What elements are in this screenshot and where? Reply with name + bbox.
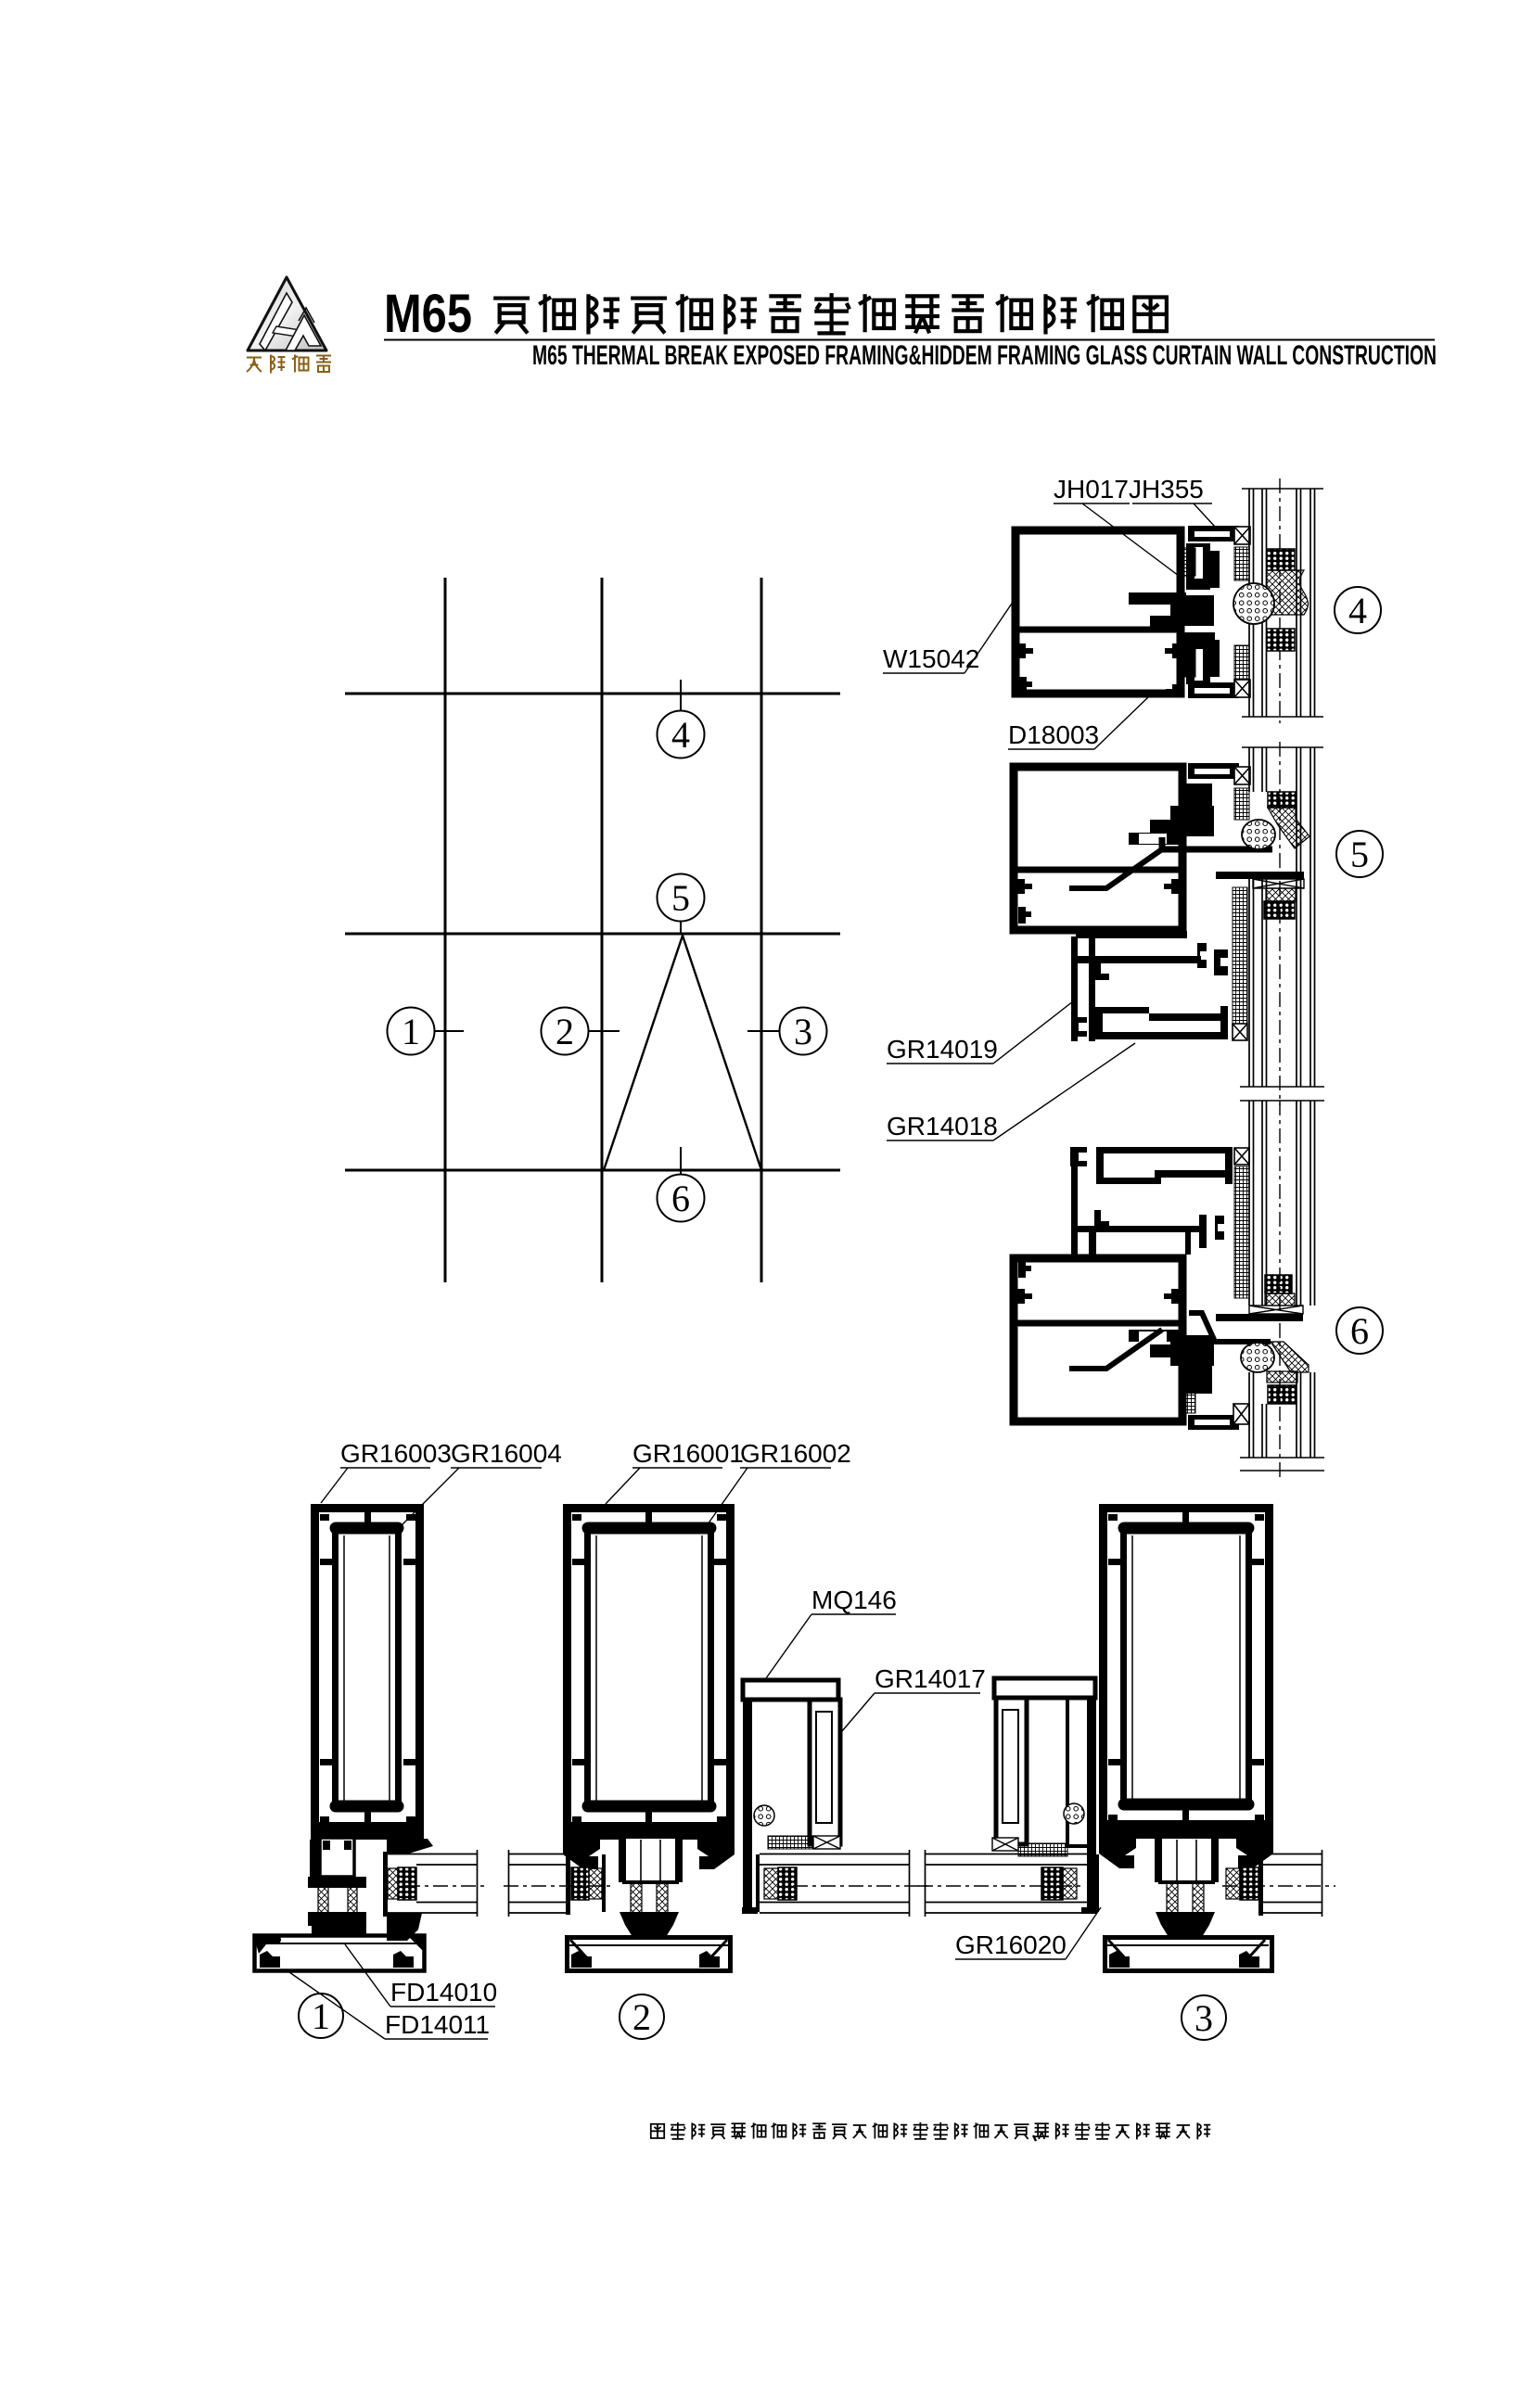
svg-text:GR14018: GR14018	[887, 1112, 998, 1140]
svg-text:4: 4	[671, 714, 690, 756]
svg-text:3: 3	[794, 1011, 812, 1052]
svg-text:GR16004: GR16004	[451, 1439, 562, 1468]
svg-text:M65 THERMAL BREAK EXPOSED FRAM: M65 THERMAL BREAK EXPOSED FRAMING&HIDDEM…	[532, 340, 1437, 371]
svg-text:JH017JH355: JH017JH355	[1054, 475, 1204, 503]
svg-text:D18003: D18003	[1008, 720, 1099, 749]
svg-text:FD14011: FD14011	[385, 2010, 490, 2039]
svg-text:5: 5	[1350, 834, 1369, 875]
svg-text:6: 6	[671, 1178, 690, 1219]
svg-text:MQ146: MQ146	[811, 1586, 897, 1614]
svg-text:M65: M65	[384, 284, 472, 344]
svg-text:GR16001: GR16001	[632, 1439, 744, 1468]
svg-text:6: 6	[1350, 1310, 1369, 1352]
svg-text:4: 4	[1348, 590, 1367, 631]
svg-text:GR16003: GR16003	[340, 1439, 452, 1468]
svg-text:GR16002: GR16002	[740, 1439, 851, 1468]
svg-text:GR14019: GR14019	[887, 1035, 998, 1064]
svg-text:GR16020: GR16020	[955, 1930, 1067, 1959]
svg-text:3: 3	[1194, 1997, 1213, 2039]
svg-text:1: 1	[402, 1011, 420, 1052]
svg-text:1: 1	[312, 1995, 330, 2037]
svg-text:5: 5	[671, 877, 690, 919]
svg-text:W15042: W15042	[883, 644, 979, 673]
svg-text:GR14017: GR14017	[875, 1664, 986, 1693]
svg-text:FD14010: FD14010	[390, 1978, 497, 2007]
svg-text:2: 2	[632, 1996, 651, 2038]
svg-text:2: 2	[556, 1011, 574, 1052]
